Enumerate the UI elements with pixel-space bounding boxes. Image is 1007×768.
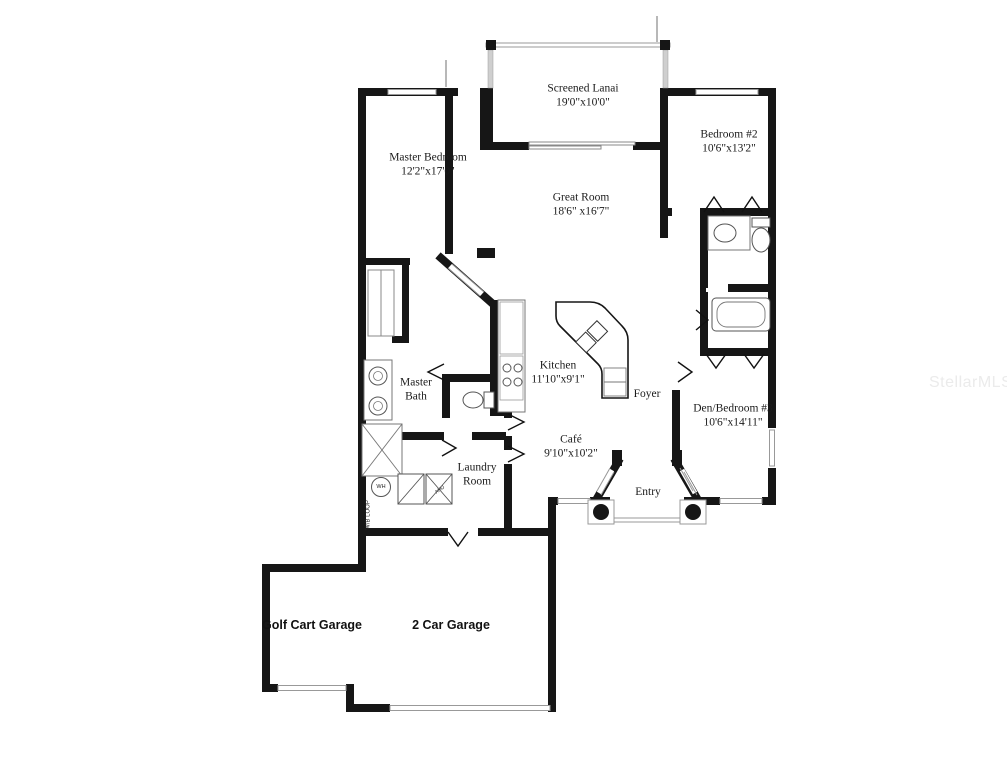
den-entry-door [678,362,692,382]
lanai-screen-walls [446,16,670,88]
room-dims: 10'6"x13'2" [674,142,784,156]
master-toilet [463,392,494,408]
room-dims: 12'2"x17'0" [363,165,493,179]
master-shower [362,424,402,476]
room-name: Café [560,433,582,445]
room-dims: 19'0"x10'0" [508,96,658,110]
room-name: Bedroom #2 [700,128,757,140]
water-heater-label: WH [376,484,385,490]
bathtub [712,298,770,331]
room-name: Laundry Room [458,461,497,487]
sliding-glass-door [529,142,635,149]
equipment-label: W/B LOOP [365,500,371,530]
room-label-master-bath: Master Bath [389,376,443,403]
room-name: Foyer [634,388,661,400]
room-name: Great Room [553,191,610,203]
garage-entry-door [448,532,468,546]
laundry-door [442,440,456,456]
room-label-golf-cart-garage: Golf Cart Garage [237,618,387,632]
room-label-kitchen: Kitchen 11'10"x9'1" [513,359,603,386]
guest-toilet [752,218,770,252]
room-name: Den/Bedroom #3 [693,402,773,414]
room-label-bedroom-2: Bedroom #2 10'6"x13'2" [674,128,784,155]
room-name: Master Bedroom [389,151,467,163]
kitchen-counter [498,300,525,412]
watermark-stellar-mls: StellarMLS [929,374,1007,392]
room-name: Entry [635,486,661,498]
room-label-entry: Entry [618,486,678,500]
room-label-screened-lanai: Screened Lanai 19'0"x10'0" [508,82,658,109]
floor-plan-drawing [0,0,1007,768]
room-dims: 9'10"x10'2" [521,447,621,461]
equipment-label: WH [376,484,385,490]
room-label-foyer: Foyer [617,388,677,402]
room-label-2-car-garage: 2 Car Garage [386,618,516,632]
room-label-laundry: Laundry Room [448,461,506,488]
room-label-great-room: Great Room 18'6" x16'7" [516,191,646,218]
wb-loop-label: W/B LOOP [365,498,373,532]
room-dims: 10'6"x14'11" [671,416,795,430]
entry-columns [588,500,706,524]
room-name: Screened Lanai [547,82,618,94]
room-name: 2 Car Garage [412,618,490,632]
room-dims: 11'10"x9'1" [513,373,603,387]
guest-bath-vanity [708,216,750,250]
room-name: Master Bath [400,376,432,402]
den-closet-door-2 [744,354,764,368]
room-name: Golf Cart Garage [262,618,362,632]
room-dims: 18'6" x16'7" [516,205,646,219]
floor-plan: Screened Lanai 19'0"x10'0" Master Bedroo… [0,0,1007,768]
room-label-master-bedroom: Master Bedroom 12'2"x17'0" [363,151,493,178]
master-vanity [364,360,392,420]
den-closet-door-1 [706,354,726,368]
master-closet [368,270,394,336]
room-label-den-bedroom-3: Den/Bedroom #3 10'6"x14'11" [671,402,795,429]
room-name: Kitchen [540,359,576,371]
room-label-cafe: Café 9'10"x10'2" [521,433,621,460]
